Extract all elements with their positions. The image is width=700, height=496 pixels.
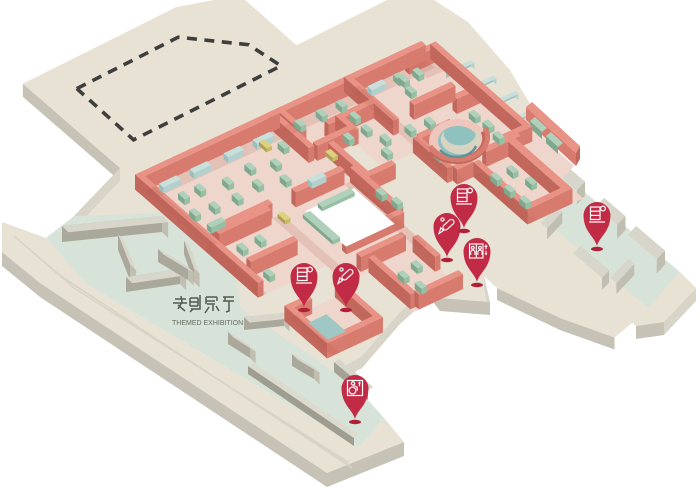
- svg-text:THEMED EXHIBITION: THEMED EXHIBITION: [172, 320, 243, 327]
